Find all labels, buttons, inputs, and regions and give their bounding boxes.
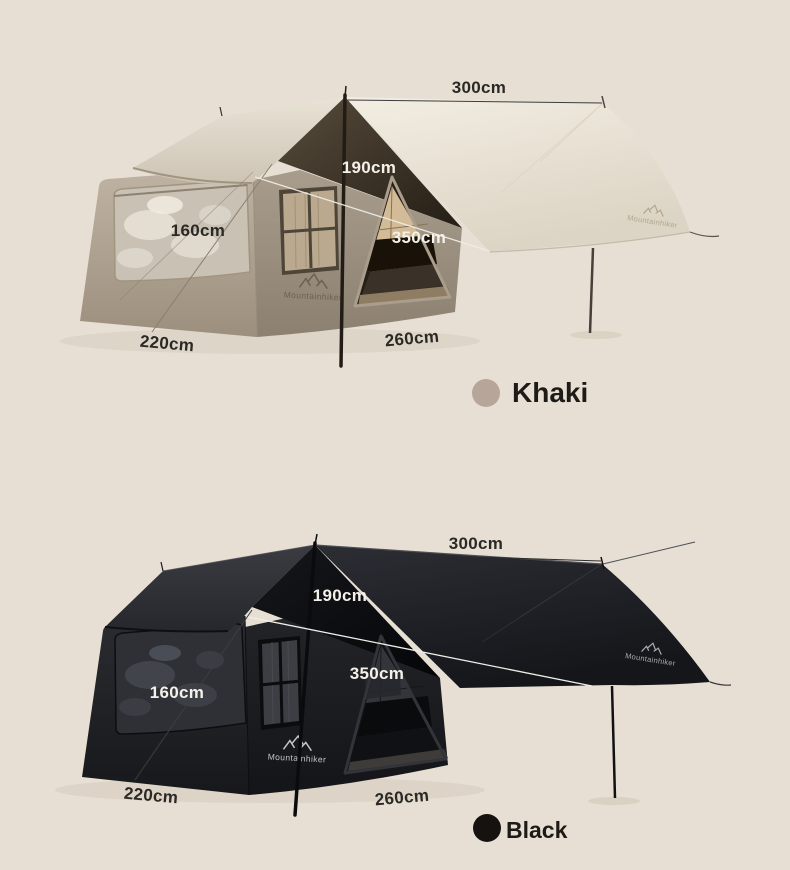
black-tent-photo: Mountainhiker bbox=[0, 435, 790, 870]
product-image: { "page": { "background": "#e7dfd4" }, "… bbox=[0, 0, 790, 870]
awning-tip-strap bbox=[690, 232, 719, 237]
khaki-tent-photo: Mountainhiker bbox=[0, 0, 790, 435]
rear-apex-tip bbox=[161, 562, 163, 571]
color-label-black: Black bbox=[506, 817, 567, 844]
color-swatch-khaki bbox=[472, 379, 500, 407]
awning-tip-strap bbox=[710, 682, 731, 685]
peak-tip bbox=[345, 86, 346, 97]
color-label-khaki: Khaki bbox=[512, 377, 588, 409]
rear-apex-tip bbox=[220, 107, 222, 116]
front-window bbox=[258, 636, 302, 730]
product-section-black: Mountainhiker bbox=[0, 435, 790, 870]
awning-support-pole bbox=[590, 248, 593, 333]
front-window bbox=[279, 186, 339, 275]
awning-corner-guyline bbox=[603, 542, 695, 564]
side-window bbox=[115, 624, 246, 734]
color-swatch-black bbox=[473, 814, 501, 842]
product-section-khaki: Mountainhiker bbox=[0, 0, 790, 435]
awning-support-pole bbox=[612, 686, 615, 798]
